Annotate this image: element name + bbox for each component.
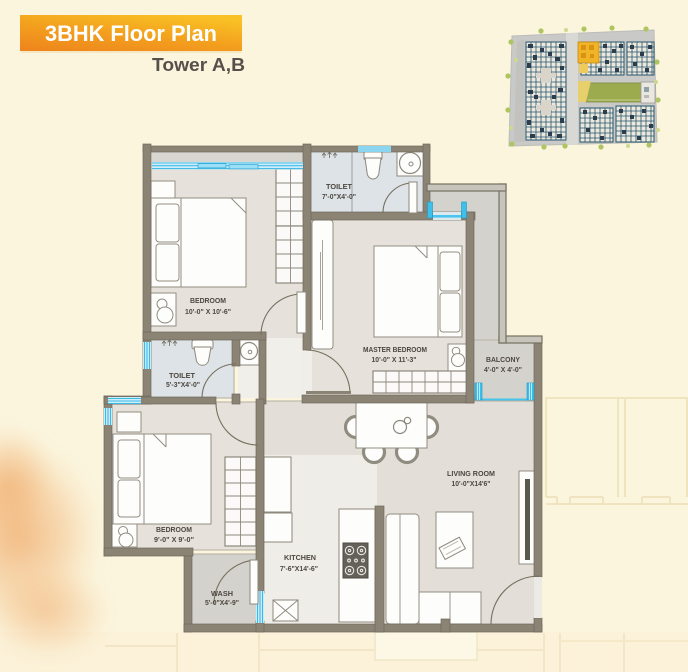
svg-text:5'-0"X4'-9": 5'-0"X4'-9" xyxy=(205,600,239,607)
svg-text:3BHK Floor Plan: 3BHK Floor Plan xyxy=(45,21,217,46)
svg-text:TOILET: TOILET xyxy=(169,371,195,380)
svg-text:BEDROOM: BEDROOM xyxy=(156,525,192,534)
svg-text:LIVING ROOM: LIVING ROOM xyxy=(447,469,495,478)
svg-text:BEDROOM: BEDROOM xyxy=(190,296,226,305)
svg-text:10'-0" X 11'-3": 10'-0" X 11'-3" xyxy=(372,357,417,364)
svg-text:9'-0" X 9'-0": 9'-0" X 9'-0" xyxy=(154,537,194,544)
svg-text:BALCONY: BALCONY xyxy=(486,355,520,364)
svg-text:10'-0" X 10'-6": 10'-0" X 10'-6" xyxy=(185,309,231,316)
svg-text:7'-6"X14'-6": 7'-6"X14'-6" xyxy=(280,566,318,573)
svg-text:10'-0"X14'6": 10'-0"X14'6" xyxy=(452,481,491,488)
svg-text:7'-0"X4'-0": 7'-0"X4'-0" xyxy=(322,194,356,201)
svg-text:Tower A,B: Tower A,B xyxy=(152,55,245,75)
svg-text:4'-0" X 4'-0": 4'-0" X 4'-0" xyxy=(484,367,522,374)
svg-text:WASH: WASH xyxy=(211,589,233,598)
svg-text:KITCHEN: KITCHEN xyxy=(284,553,316,562)
svg-text:TOILET: TOILET xyxy=(326,182,352,191)
svg-text:MASTER BEDROOM: MASTER BEDROOM xyxy=(363,345,427,354)
svg-text:5'-3"X4'-0": 5'-3"X4'-0" xyxy=(166,382,200,389)
